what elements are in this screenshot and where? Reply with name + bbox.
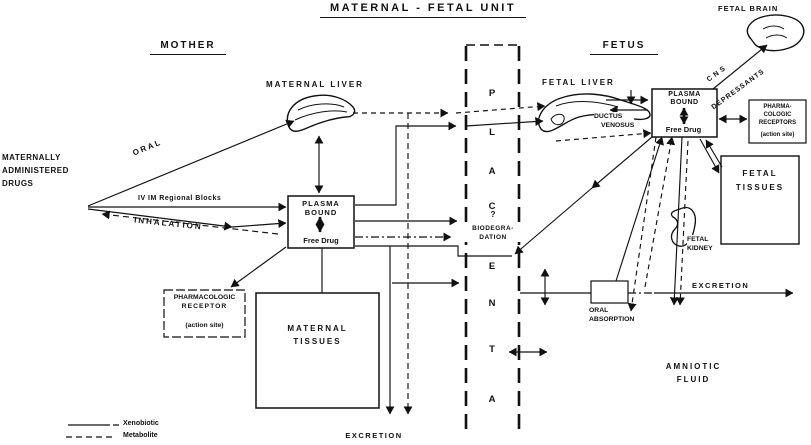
maternal-tissues-label: MATERNAL TISSUES xyxy=(256,322,379,348)
fetal-plasma-bound-label2: BOUND xyxy=(652,99,717,107)
placenta-to-fetal-liver-line xyxy=(466,121,543,126)
fetal-free-drug-label: Free Drug xyxy=(650,125,717,134)
legend-xenobiotic-label: Xenobiotic xyxy=(123,420,159,428)
fetal-excretion-label: EXCRETION xyxy=(692,281,749,290)
placenta-letter: N xyxy=(482,298,502,309)
amniotic-fluid-label: AMNIOTIC FLUID xyxy=(656,360,731,386)
maternal-plasma-bound-label: PLASMA xyxy=(288,199,354,208)
fetal-freedrug-to-placenta-arrow2 xyxy=(515,188,592,254)
fetal-kidney-label: FETAL KIDNEY xyxy=(687,235,713,253)
placenta-letter: A xyxy=(482,166,502,177)
ductus-venosus-label: DUCTUS VENOSUS xyxy=(594,112,634,130)
biodegradation-bracket xyxy=(355,246,512,256)
maternal-fetal-unit-diagram: MATERNAL - FETAL UNIT MOTHER FETUS MATER… xyxy=(0,0,811,445)
legend-metabolite-label: Metabolite xyxy=(123,432,158,440)
oral-absorption-box xyxy=(591,281,628,303)
maternal-plasma-bound-label2: BOUND xyxy=(288,208,354,217)
plasma-to-placenta-line xyxy=(355,126,456,205)
fetal-freedrug-to-placenta-arrow xyxy=(592,137,652,188)
placenta-letter: L xyxy=(482,127,502,138)
fetal-liver-label: FETAL LIVER xyxy=(542,78,615,88)
fetal-brain-shape xyxy=(747,15,803,51)
placenta-letter: T xyxy=(482,344,502,355)
fetal-brain-label: FETAL BRAIN xyxy=(718,4,778,13)
maternal-excretion-label: EXCRETION xyxy=(338,431,410,440)
biodegradation-label: BIODEGRA- DATION xyxy=(462,224,524,242)
fetal-tissues-label: FETAL TISSUES xyxy=(721,167,799,195)
placenta-letter: P xyxy=(482,88,502,99)
maternal-receptor-label2: RECEPTOR xyxy=(164,303,245,311)
fetal-receptors-label: PHARMA- COLOGIC RECEPTORS (action site) xyxy=(749,103,806,139)
placenta-letter: A xyxy=(482,394,502,405)
maternal-tissues-box xyxy=(256,293,379,408)
maternal-liver-shape xyxy=(287,95,354,131)
oral-absorption-label: ORAL ABSORPTION xyxy=(589,306,634,324)
oral-route-arrow xyxy=(88,121,294,206)
maternal-free-drug-label: Free Drug xyxy=(288,236,354,245)
fetal-liver-metabolite-dashed xyxy=(556,133,651,141)
page-title: MATERNAL - FETAL UNIT xyxy=(320,2,526,18)
maternal-receptor-label1: PHARMACOLOGIC xyxy=(164,294,245,302)
iv-im-route-label: IV IM Regional Blocks xyxy=(138,195,221,203)
maternal-liver-label: MATERNAL LIVER xyxy=(266,80,364,90)
plasma-to-receptor-arrow xyxy=(231,247,286,287)
maternal-receptor-action-site: (action site) xyxy=(164,322,245,330)
metabolite-to-fetal-liver-dashed xyxy=(456,106,545,113)
amniotic-to-plasma-dashed-arrow xyxy=(645,137,672,287)
mother-heading: MOTHER xyxy=(150,40,226,55)
maternally-administered-drugs-label: MATERNALLY ADMINISTERED DRUGS xyxy=(2,151,69,190)
oral-absorption-to-plasma-arrow xyxy=(616,137,662,281)
placenta-letter: E xyxy=(482,261,502,272)
biodegradation-question-mark: ? xyxy=(487,210,499,220)
fetus-heading: FETUS xyxy=(590,40,658,55)
inhalation-route-arrow2 xyxy=(232,223,286,227)
freedrug-to-fetal-tissues-arrow xyxy=(700,139,719,173)
